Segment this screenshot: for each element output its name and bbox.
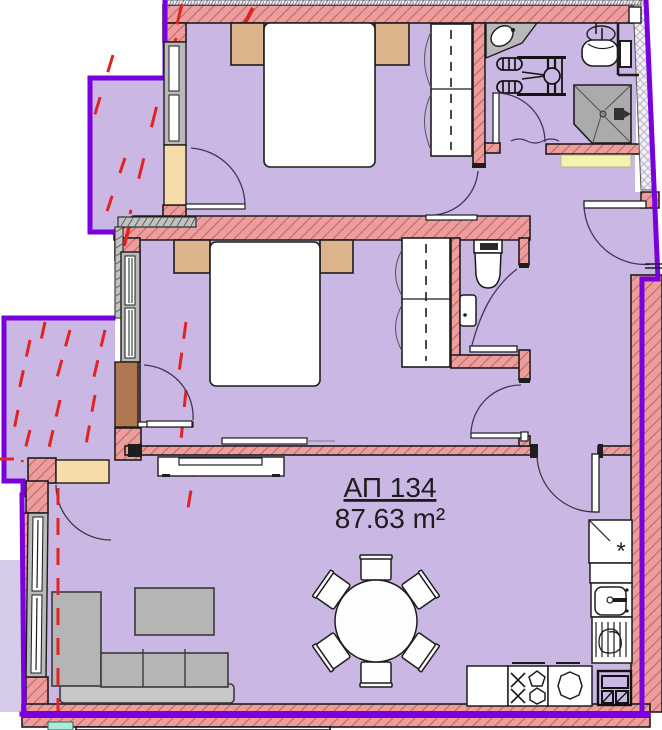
svg-text:*: * [616,538,625,565]
svg-text:АП 134: АП 134 [344,472,437,503]
svg-text:87.63 m²: 87.63 m² [335,503,446,534]
